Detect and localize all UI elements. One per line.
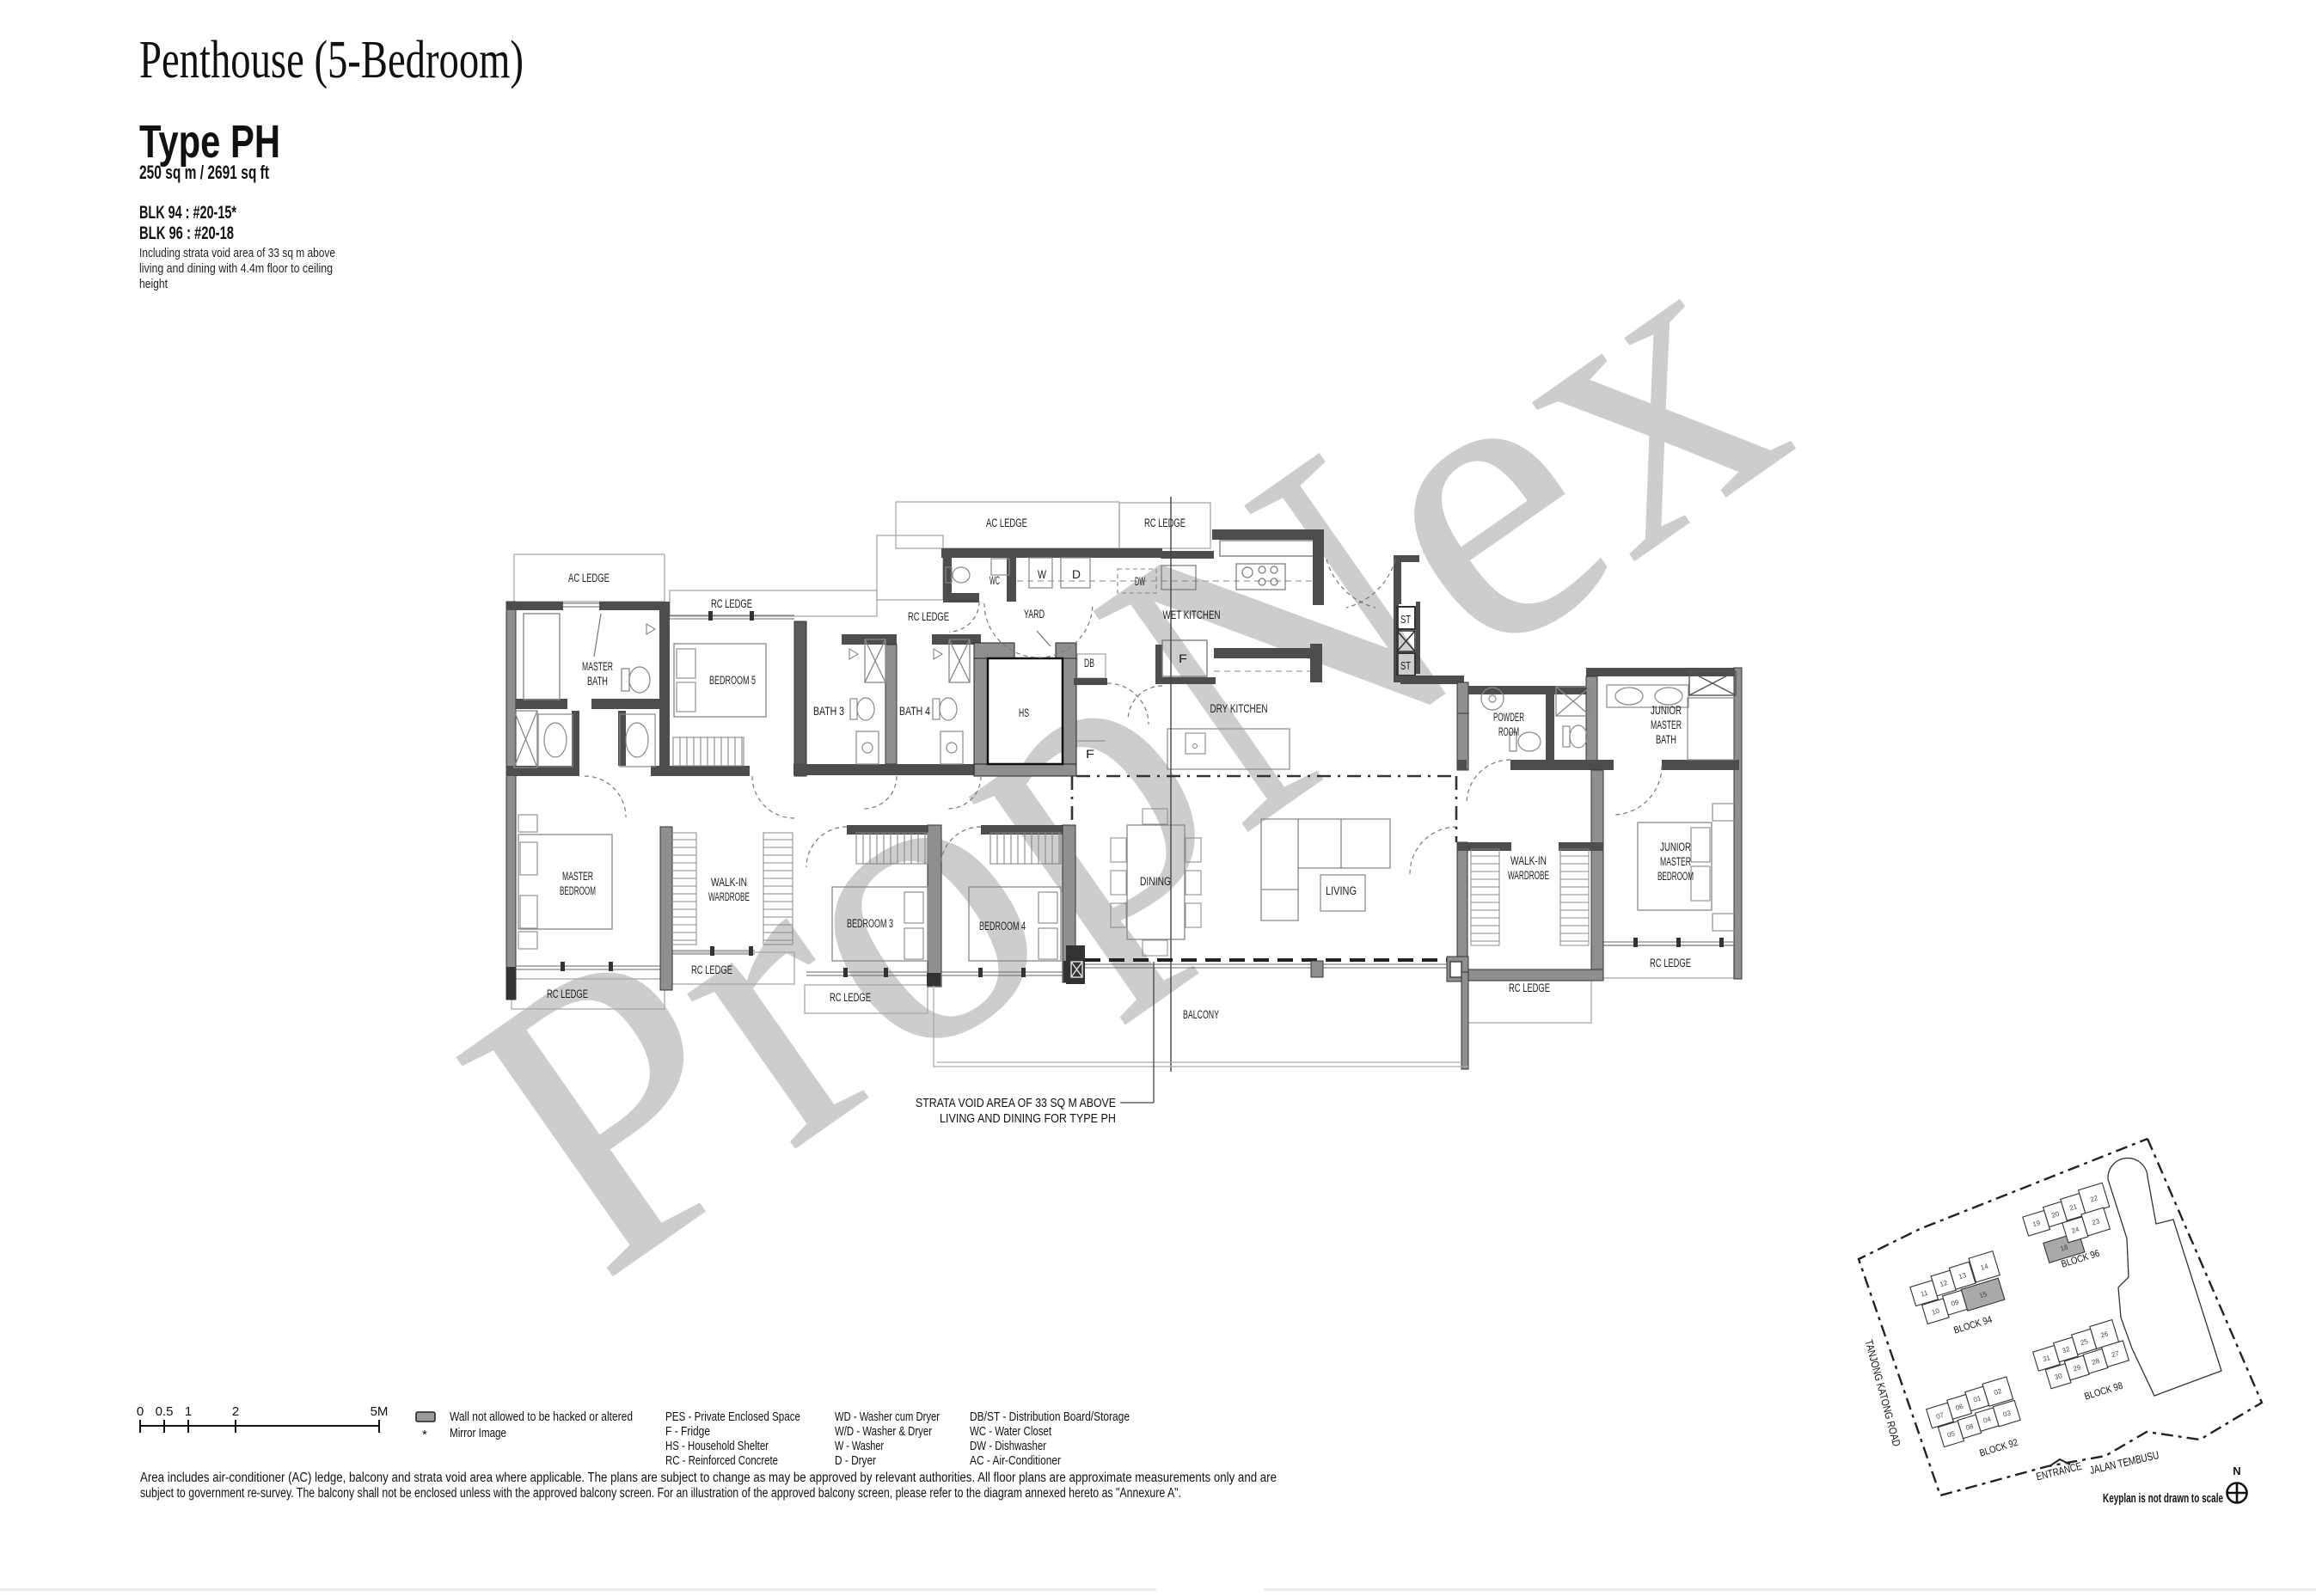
svg-text:F: F [1179,652,1187,665]
svg-text:JUNIOR: JUNIOR [1660,841,1691,853]
svg-text:HS: HS [1019,706,1029,719]
svg-text:MASTER: MASTER [562,870,593,883]
svg-text:BALCONY: BALCONY [1183,1008,1219,1021]
svg-text:YARD: YARD [1024,608,1045,621]
svg-text:RC LEDGE: RC LEDGE [1650,957,1691,969]
svg-text:JUNIOR: JUNIOR [1651,704,1682,717]
svg-text:HS - Household Shelter: HS - Household Shelter [665,1439,769,1453]
svg-text:DRY KITCHEN: DRY KITCHEN [1210,702,1268,715]
svg-text:RC LEDGE: RC LEDGE [1144,517,1186,529]
svg-text:MASTER: MASTER [582,660,613,673]
svg-text:BLK 94 : #20-15*: BLK 94 : #20-15* [139,203,237,223]
svg-text:ST: ST [1400,660,1411,672]
svg-text:AC - Air-Conditioner: AC - Air-Conditioner [970,1453,1061,1468]
svg-text:D: D [1072,568,1081,581]
svg-text:BEDROOM: BEDROOM [1657,870,1694,883]
svg-text:W/D - Washer & Dryer: W/D - Washer & Dryer [835,1424,932,1439]
svg-text:BEDROOM: BEDROOM [560,884,596,897]
svg-text:0: 0 [137,1404,144,1419]
svg-text:AC LEDGE: AC LEDGE [986,517,1027,529]
svg-text:LIVING AND DINING FOR TYPE PH: LIVING AND DINING FOR TYPE PH [940,1112,1116,1126]
svg-text:WC - Water Closet: WC - Water Closet [970,1424,1052,1439]
svg-text:Type PH: Type PH [139,116,280,168]
svg-text:STRATA VOID AREA OF 33 SQ M AB: STRATA VOID AREA OF 33 SQ M ABOVE [916,1097,1116,1110]
svg-text:subject to government re-surve: subject to government re-survey. The bal… [140,1486,1181,1501]
svg-text:WC: WC [990,574,1000,587]
svg-text:RC LEDGE: RC LEDGE [830,991,871,1004]
svg-text:BEDROOM 4: BEDROOM 4 [979,920,1026,933]
svg-text:WALK-IN: WALK-IN [711,876,747,889]
svg-text:2: 2 [232,1404,239,1419]
svg-text:RC LEDGE: RC LEDGE [908,610,949,623]
svg-text:250 sq m / 2691 sq ft: 250 sq m / 2691 sq ft [139,162,269,183]
svg-text:RC - Reinforced Concrete: RC - Reinforced Concrete [665,1453,778,1468]
svg-text:Including strata void area of: Including strata void area of 33 sq m ab… [139,246,335,260]
svg-text:Penthouse (5-Bedroom): Penthouse (5-Bedroom) [139,31,524,89]
svg-text:RC LEDGE: RC LEDGE [1509,981,1550,994]
svg-text:DW - Dishwasher: DW - Dishwasher [970,1439,1046,1453]
svg-text:RC LEDGE: RC LEDGE [711,597,752,610]
svg-text:F - Fridge: F - Fridge [665,1424,710,1439]
svg-text:BATH: BATH [1656,733,1676,746]
svg-text:MASTER: MASTER [1660,855,1691,868]
svg-text:height: height [139,277,168,291]
svg-text:RC LEDGE: RC LEDGE [691,963,732,976]
svg-text:BLK 96 : #20-18: BLK 96 : #20-18 [139,223,234,243]
svg-text:WALK-IN: WALK-IN [1510,854,1547,867]
svg-text:W - Washer: W - Washer [835,1439,884,1453]
svg-text:Area includes air-conditioner: Area includes air-conditioner (AC) ledge… [140,1471,1277,1485]
svg-text:PES - Private Enclosed Space: PES - Private Enclosed Space [665,1409,800,1424]
svg-text:BATH 3: BATH 3 [813,705,844,718]
svg-text:*: * [422,1428,427,1442]
svg-text:Keyplan is not drawn to scale: Keyplan is not drawn to scale [2103,1491,2223,1506]
svg-text:DINING: DINING [1140,875,1171,888]
svg-text:LIVING: LIVING [1326,884,1357,897]
svg-text:BATH 4: BATH 4 [899,705,930,718]
svg-text:RC LEDGE: RC LEDGE [547,988,588,1000]
svg-text:ST: ST [1400,614,1411,626]
svg-text:W: W [1038,568,1046,581]
svg-text:living and dining with 4.4m fl: living and dining with 4.4m floor to cei… [139,261,333,276]
svg-text:POWDER: POWDER [1493,711,1524,724]
svg-text:BEDROOM 3: BEDROOM 3 [847,917,893,930]
svg-text:AC LEDGE: AC LEDGE [568,572,610,584]
svg-text:DB: DB [1084,657,1094,670]
svg-text:BATH: BATH [587,675,608,688]
svg-text:DB/ST - Distribution Board/Sto: DB/ST - Distribution Board/Storage [970,1409,1130,1424]
svg-text:WARDROBE: WARDROBE [708,890,750,903]
svg-text:WD - Washer cum Dryer: WD - Washer cum Dryer [835,1409,940,1424]
svg-text:DW: DW [1135,575,1145,588]
svg-text:5M: 5M [371,1404,389,1419]
svg-text:MASTER: MASTER [1651,719,1682,731]
svg-text:0.5: 0.5 [156,1404,174,1419]
svg-text:Mirror Image: Mirror Image [450,1426,506,1440]
svg-text:BEDROOM 5: BEDROOM 5 [709,674,756,687]
svg-text:Wall not allowed to be hacked: Wall not allowed to be hacked or altered [450,1409,633,1424]
svg-text:D - Dryer: D - Dryer [835,1453,876,1468]
svg-text:ROOM: ROOM [1498,725,1519,738]
svg-text:WARDROBE: WARDROBE [1508,869,1549,882]
svg-text:1: 1 [185,1404,192,1419]
svg-text:F: F [1086,748,1094,761]
svg-text:N: N [2233,1465,2240,1477]
